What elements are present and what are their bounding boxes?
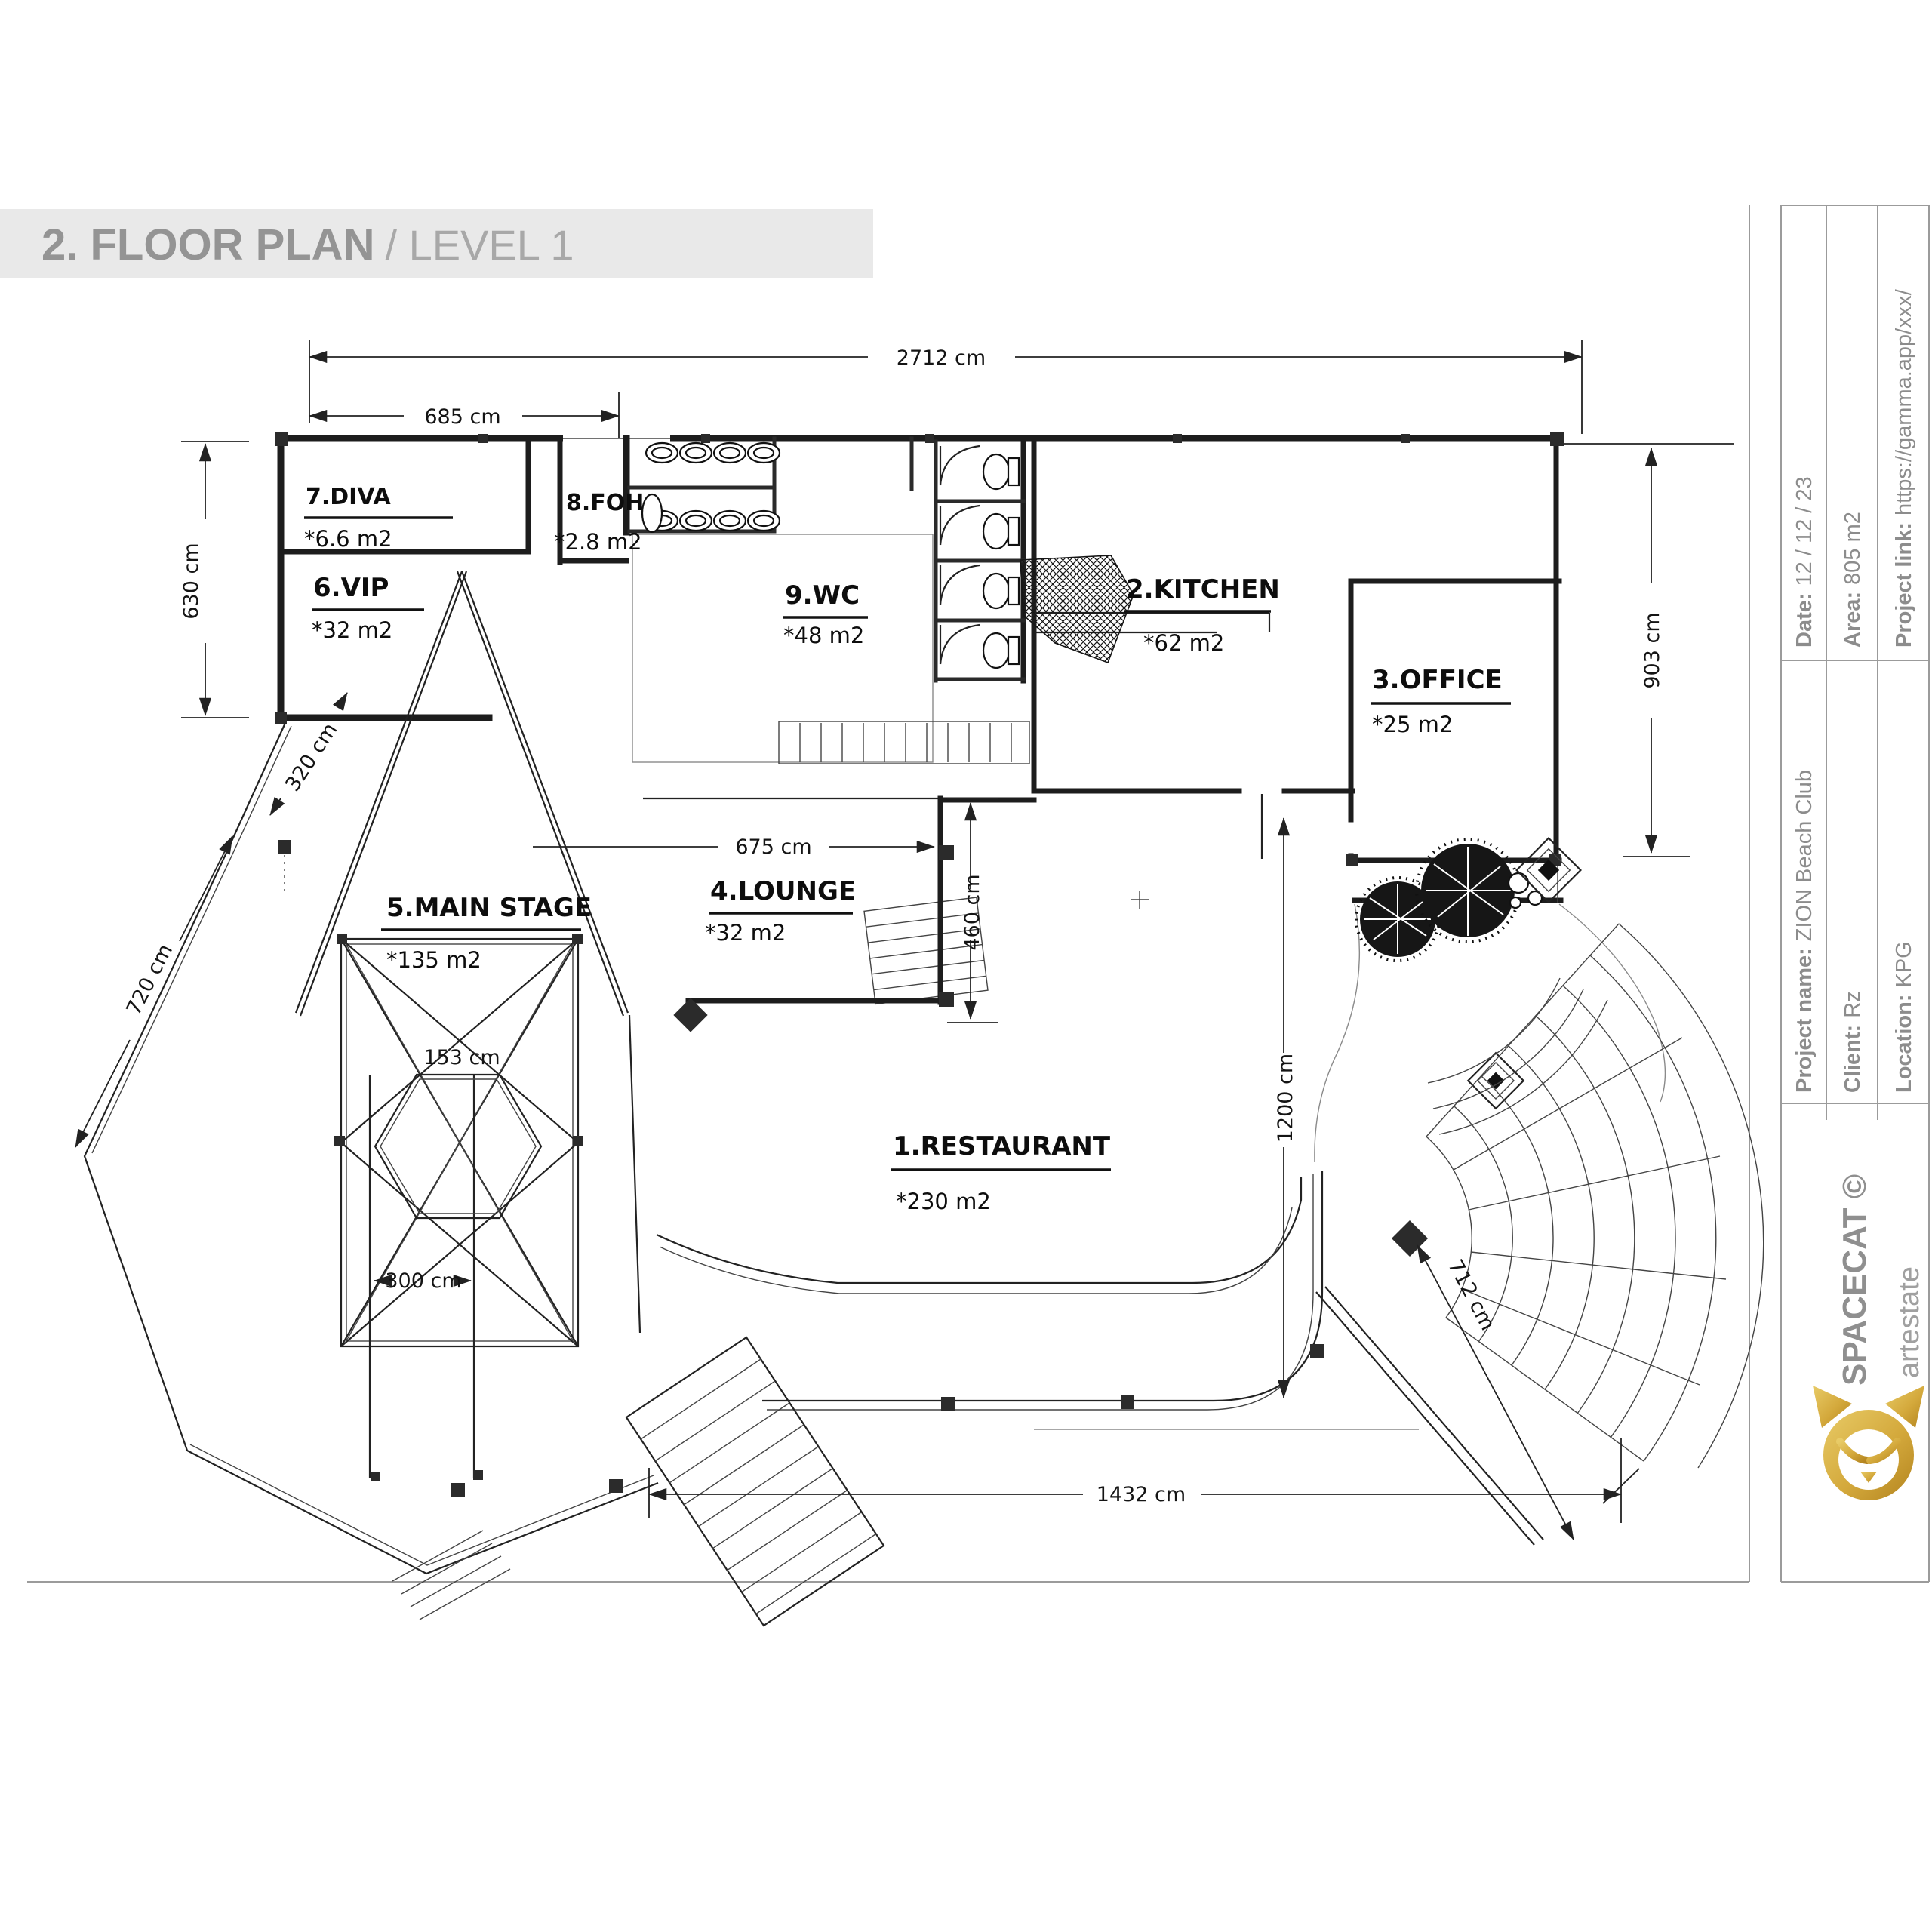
room-label-lounge: 4.LOUNGE bbox=[710, 876, 856, 906]
room-area-office: *25 m2 bbox=[1372, 712, 1453, 737]
project-name-label: Project name: bbox=[1792, 948, 1817, 1093]
page-title: 2. FLOOR PLAN/ LEVEL 1 bbox=[42, 220, 574, 269]
dim-text-720: 720 cm bbox=[122, 940, 178, 1019]
dim-text-320: 320 cm bbox=[281, 718, 342, 795]
dim-text-630: 630 cm bbox=[180, 543, 203, 619]
sidebar-field-date: Date:12 / 12 / 23 bbox=[1792, 476, 1817, 648]
room-area-mainstage: *135 m2 bbox=[386, 947, 481, 973]
wc-zone-outline bbox=[632, 534, 933, 762]
project-link-value: https://gamma.app/xxx/ bbox=[1892, 288, 1916, 515]
dim-1200: 1200 cm bbox=[1274, 818, 1297, 1398]
area-value: 805 m2 bbox=[1841, 512, 1865, 585]
room-label-foh: 8.FOH bbox=[566, 490, 644, 516]
dim-300: 300 cm bbox=[374, 1269, 471, 1293]
page-title-sub: / LEVEL 1 bbox=[385, 221, 574, 269]
room-label-office: 3.OFFICE bbox=[1372, 665, 1503, 695]
dim-text-903: 903 cm bbox=[1641, 612, 1664, 688]
floor-plan: 7.DIVA *6.6 m2 6.VIP *32 m2 8.FOH *2.8 m… bbox=[75, 340, 1764, 1626]
room-area-wc: *48 m2 bbox=[783, 623, 864, 648]
project-name-value: ZION Beach Club bbox=[1792, 770, 1817, 941]
toilet-stall-icons bbox=[940, 446, 1019, 668]
project-link-label: Project link: bbox=[1892, 522, 1916, 648]
room-label-restaurant: 1.RESTAURANT bbox=[893, 1131, 1111, 1161]
dim-text-1432: 1432 cm bbox=[1097, 1483, 1186, 1506]
room-label-kitchen: 2.KITCHEN bbox=[1126, 574, 1280, 605]
dimensions: 2712 cm 685 cm 630 cm 903 cm bbox=[75, 340, 1734, 1540]
room-label-mainstage: 5.MAIN STAGE bbox=[386, 893, 592, 923]
area-label: Area: bbox=[1841, 592, 1865, 648]
walls bbox=[281, 431, 1561, 909]
landscape bbox=[1315, 838, 1666, 1257]
floor-plan-sheet: 2. FLOOR PLAN/ LEVEL 1 bbox=[0, 0, 1932, 1932]
dim-460: 460 cm bbox=[947, 798, 998, 1023]
entry-stairs bbox=[779, 721, 1029, 764]
page-title-main: 2. FLOOR PLAN bbox=[42, 220, 374, 269]
bar-counter-mesh bbox=[1020, 555, 1134, 663]
sidebar-field-project-link: Project link:https://gamma.app/xxx/ bbox=[1892, 288, 1916, 648]
dim-720: 720 cm bbox=[75, 836, 232, 1147]
dim-text-712: 712 cm bbox=[1443, 1256, 1500, 1334]
date-value: 12 / 12 / 23 bbox=[1792, 476, 1817, 586]
dim-text-675: 675 cm bbox=[735, 835, 811, 859]
brand-name: SPACECAT © bbox=[1836, 1174, 1873, 1386]
dim-675: 675 cm bbox=[533, 835, 934, 859]
room-label-wc: 9.WC bbox=[785, 580, 860, 611]
room-area-kitchen: *62 m2 bbox=[1143, 630, 1224, 656]
dim-712: 712 cm bbox=[1417, 1245, 1574, 1540]
title-banner: 2. FLOOR PLAN/ LEVEL 1 bbox=[0, 209, 873, 278]
room-area-diva: *6.6 m2 bbox=[304, 526, 392, 552]
dim-text-2712: 2712 cm bbox=[897, 346, 986, 370]
room-area-vip: *32 m2 bbox=[312, 617, 392, 643]
amphitheater-steps bbox=[1426, 924, 1764, 1468]
column-posts bbox=[275, 432, 1564, 866]
dim-1432: 1432 cm bbox=[649, 1438, 1639, 1523]
room-area-foh: *2.8 m2 bbox=[554, 529, 642, 555]
dim-text-460: 460 cm bbox=[961, 874, 984, 950]
sidebar-field-area: Area:805 m2 bbox=[1841, 512, 1865, 648]
sidebar-field-project-name: Project name:ZION Beach Club bbox=[1792, 770, 1817, 1093]
dim-903: 903 cm bbox=[1564, 444, 1734, 857]
lounge-walls bbox=[643, 798, 954, 1032]
location-label: Location: bbox=[1892, 995, 1916, 1094]
dim-text-685: 685 cm bbox=[424, 405, 500, 429]
planter-icon bbox=[1517, 838, 1581, 903]
dim-630: 630 cm bbox=[180, 441, 249, 718]
dim-text-153: 153 cm bbox=[423, 1046, 500, 1069]
client-value: Rz bbox=[1841, 991, 1865, 1017]
sidebar-field-location: Location:KPG bbox=[1892, 941, 1916, 1093]
room-label-vip: 6.VIP bbox=[313, 573, 389, 603]
room-label-diva: 7.DIVA bbox=[306, 484, 392, 510]
stage-stairs bbox=[392, 1531, 510, 1620]
client-label: Client: bbox=[1841, 1025, 1865, 1093]
dim-text-1200: 1200 cm bbox=[1274, 1054, 1297, 1143]
dim-text-300: 300 cm bbox=[385, 1269, 461, 1293]
title-block-sidebar: Date:12 / 12 / 23 Area:805 m2 Project li… bbox=[1781, 205, 1929, 1582]
room-labels: 7.DIVA *6.6 m2 6.VIP *32 m2 8.FOH *2.8 m… bbox=[304, 484, 1511, 1214]
date-label: Date: bbox=[1792, 592, 1817, 648]
cat-logo-icon bbox=[1813, 1386, 1924, 1500]
location-value: KPG bbox=[1892, 941, 1916, 987]
sidebar-field-client: Client:Rz bbox=[1841, 991, 1865, 1093]
brand-subname: artestate bbox=[1894, 1266, 1925, 1378]
room-area-lounge: *32 m2 bbox=[705, 920, 786, 946]
room-area-restaurant: *230 m2 bbox=[896, 1189, 991, 1214]
main-stage-structure bbox=[296, 571, 628, 1481]
